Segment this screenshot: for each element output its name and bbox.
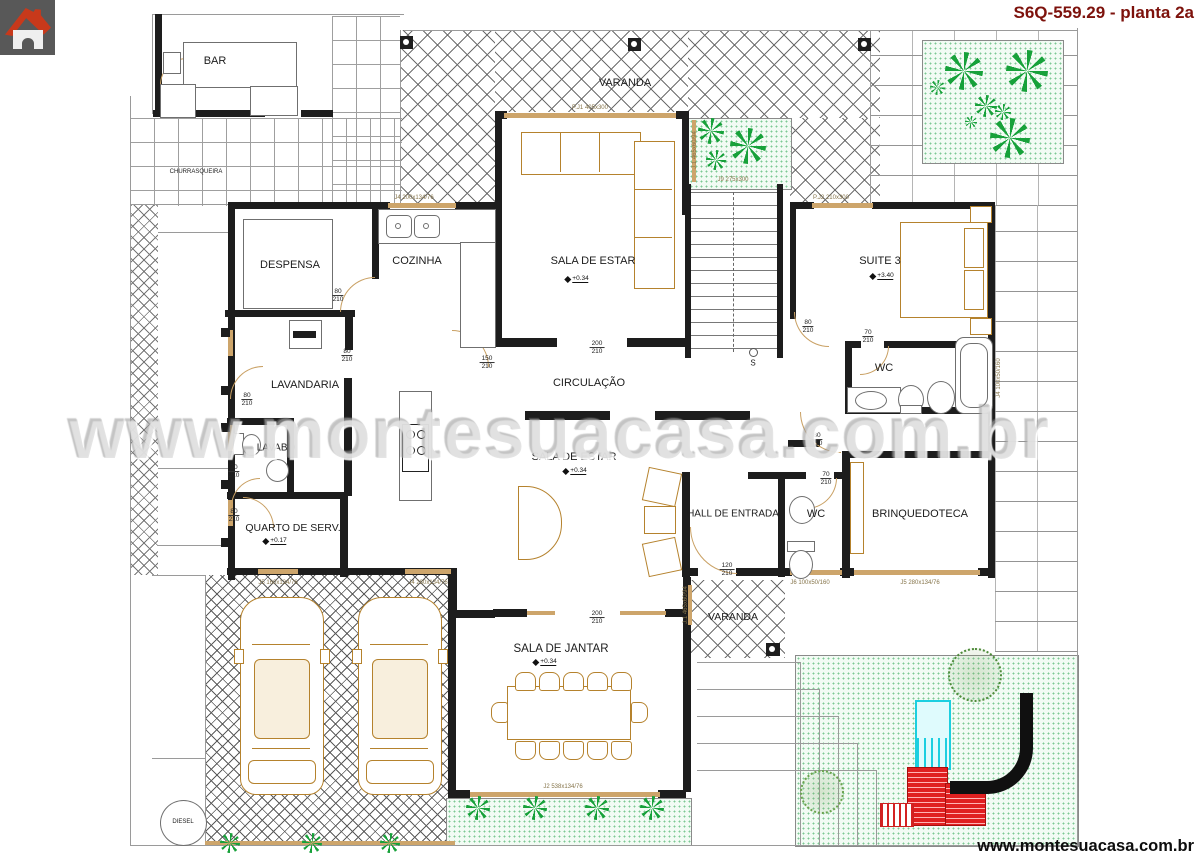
window-sill [221, 386, 230, 395]
column [628, 38, 641, 51]
armchair [642, 537, 682, 577]
room-label: DIESEL [172, 819, 193, 825]
dining-chair [587, 672, 608, 691]
stove-burner [406, 430, 415, 439]
boundary-line [870, 30, 871, 205]
dining-chair [515, 741, 536, 760]
level-marker: +0.34 [533, 658, 556, 666]
window-line [205, 841, 455, 845]
boundary-line [152, 575, 205, 576]
bar-counter [183, 42, 297, 88]
plant-icon [965, 116, 977, 128]
door-dimension-label: 80210 [228, 508, 239, 524]
door-dimension-label: 120210 [720, 562, 735, 578]
stove-burner [417, 430, 426, 439]
window-line [258, 569, 298, 574]
boundary-line [697, 662, 800, 663]
room-label: DESPENSA [260, 259, 320, 271]
plant-icon [706, 150, 726, 170]
column [400, 36, 413, 49]
kitchen-counter [460, 242, 496, 348]
wall-segment [495, 338, 557, 347]
window-line [854, 570, 980, 575]
wall-segment [655, 411, 750, 420]
boundary-line [130, 118, 131, 206]
plant-icon [466, 796, 490, 820]
room-label: CIRCULAÇÃO [553, 377, 625, 389]
window-line [470, 792, 660, 797]
site-logo house-logo-icon[interactable] [0, 0, 55, 55]
wall-segment [777, 184, 783, 358]
car-hood [248, 760, 316, 784]
window-line [812, 203, 873, 208]
wall-segment [676, 111, 688, 119]
wall-segment [658, 790, 686, 798]
site-url[interactable]: www.montesuacasa.com.br [977, 837, 1194, 856]
wall-segment [842, 451, 994, 458]
window-sill [221, 480, 230, 489]
dining-chair [491, 702, 508, 723]
wall-segment [493, 609, 527, 617]
boundary-line [1077, 28, 1078, 846]
level-marker: +0.34 [563, 467, 586, 475]
window-line [504, 113, 676, 118]
plant-icon [220, 833, 240, 853]
room-label: BAR [204, 55, 227, 67]
room-label: VARANDA [708, 611, 758, 623]
varanda-hatch [400, 30, 495, 206]
window-label: P.J1 405x300 [572, 105, 608, 111]
window-label: J5 160x134/76 [258, 580, 297, 586]
car-mirror [438, 649, 448, 664]
bidet [927, 381, 955, 414]
bathtub-inner [960, 343, 988, 408]
wall-segment [448, 790, 470, 798]
play-slide-black [950, 693, 1033, 794]
side-setback-hatch [130, 205, 158, 575]
bar-counter [250, 86, 298, 116]
window-label: J2 538x134/76 [543, 784, 582, 790]
window-label: J4 280x134/76 [408, 580, 447, 586]
car-hood [366, 760, 434, 784]
wall-segment [525, 411, 610, 420]
varanda-hatch [790, 118, 880, 205]
plant-icon [1006, 50, 1048, 92]
wall-segment [682, 568, 698, 576]
sink-drain [395, 223, 401, 229]
boundary-line [819, 689, 820, 845]
room-label: WC [875, 362, 893, 374]
toilet-seat [900, 405, 922, 414]
room-label: SALA DE ESTAR [532, 451, 617, 463]
door-dimension-label: 70210 [820, 471, 831, 487]
sink-drain [423, 223, 429, 229]
sofa [634, 141, 675, 289]
window-label: J4 200x134/76 [394, 195, 433, 201]
boundary-line [404, 30, 1078, 31]
window-label: J5 280x134/76 [900, 580, 939, 586]
varanda-hatch [495, 30, 688, 112]
car-mirror [352, 649, 362, 664]
wall-segment [627, 338, 689, 347]
dining-chair [611, 741, 632, 760]
room-label: COZINHA [392, 255, 442, 267]
wall-segment [988, 451, 995, 578]
wall-segment [790, 202, 796, 319]
door-dimension-label: 80210 [241, 392, 252, 408]
floor-plan-canvas: S6Q-559.29 - planta 2a www.montesuacasa.… [0, 0, 1200, 857]
room-label: WC [807, 508, 825, 520]
window-label: J4 100x50/160 [996, 358, 1002, 397]
side-table [644, 506, 676, 534]
room-label: SALA DE JANTAR [513, 643, 608, 655]
nightstand [970, 206, 992, 223]
window-line [620, 611, 666, 615]
sink-basin [266, 459, 289, 482]
car-rear-window [370, 748, 428, 749]
bar-fridge [160, 84, 196, 118]
door-dimension-label: 80210 [802, 319, 813, 335]
window-label: J.1 465x60/94 [683, 586, 689, 624]
dining-chair [539, 672, 560, 691]
plant-icon [730, 128, 766, 164]
sofa-seam [599, 133, 600, 172]
wall-segment [842, 451, 850, 578]
folding-door [850, 462, 864, 554]
wall-segment [978, 568, 995, 576]
boundary-line [152, 14, 153, 114]
boundary-line [697, 716, 838, 717]
level-marker: +3.40 [870, 272, 893, 280]
door-dimension-label: 80210 [332, 288, 343, 304]
door-dimension-label: 70210 [228, 464, 239, 480]
boundary-line [158, 232, 228, 233]
wall-segment [225, 310, 355, 317]
door-dimension-label: 70210 [862, 329, 873, 345]
tree-icon [800, 770, 844, 814]
door-dimension-label: 200210 [590, 340, 605, 356]
wall-segment [340, 494, 348, 577]
plant-icon [698, 118, 724, 144]
wall-segment [287, 418, 294, 496]
plant-icon [585, 796, 609, 820]
car-mirror [320, 649, 330, 664]
boundary-line [400, 30, 401, 206]
staircase [691, 192, 777, 352]
room-label: BRINQUEDOTECA [872, 508, 968, 520]
dining-chair [539, 741, 560, 760]
window-sill [221, 538, 230, 547]
wall-segment [345, 310, 353, 350]
plant-icon [990, 118, 1030, 158]
bar-sink [163, 52, 181, 74]
logo-house-body [13, 30, 43, 49]
wall-segment [455, 202, 497, 209]
tile-patio [130, 118, 402, 206]
plant-icon [930, 80, 945, 95]
window-line [527, 611, 555, 615]
plant-icon [640, 796, 664, 820]
plant-icon [523, 796, 547, 820]
plan-title: S6Q-559.29 - planta 2a [1014, 3, 1194, 23]
stair-start-marker [749, 348, 758, 357]
plant-icon [302, 833, 322, 853]
car-roof [254, 659, 310, 739]
pillow [964, 270, 984, 310]
boundary-line [130, 96, 131, 845]
wall-segment [495, 111, 502, 215]
car-rear-window [252, 748, 310, 749]
window-line [388, 203, 456, 208]
door-dimension-label: 80210 [811, 432, 822, 448]
room-label: SUITE 3 [859, 255, 901, 267]
wall-segment [683, 612, 691, 792]
boundary-line [152, 758, 205, 759]
level-marker: +0.34 [565, 275, 588, 283]
washer-band [293, 331, 316, 338]
car-roof [372, 659, 428, 739]
wall-segment [736, 568, 792, 576]
boundary-line [800, 662, 801, 845]
dining-chair [631, 702, 648, 723]
toilet-bowl [789, 550, 813, 579]
level-marker: +0.17 [263, 537, 286, 545]
wall-segment [495, 213, 502, 342]
room-label: CHURRASQUEIRA [170, 169, 223, 175]
boundary-line [857, 743, 858, 845]
boundary-line [158, 468, 228, 469]
wall-segment [344, 378, 352, 496]
wall-segment [840, 568, 854, 576]
stove-burner [417, 446, 426, 455]
room-label: VARANDA [599, 77, 651, 89]
armchair [642, 467, 682, 507]
boundary-line [697, 770, 876, 771]
sofa-seam [635, 189, 672, 190]
room-label: LAVANDARIA [271, 379, 339, 391]
nightstand [970, 318, 992, 335]
wall-segment [227, 418, 291, 425]
room-label: S [750, 359, 755, 368]
window-label: J6 100x50/160 [790, 580, 829, 586]
room-label: HALL DE ENTRADA [687, 509, 779, 520]
window-label: J9 275x300 [717, 177, 748, 183]
wall-segment [301, 110, 333, 117]
wall-segment [228, 202, 390, 209]
door-dimension-label: 150210 [480, 355, 495, 371]
varanda-hatch [688, 30, 880, 118]
window-sill [221, 423, 230, 432]
car-windshield [370, 644, 428, 645]
wall-segment [448, 575, 457, 615]
dining-chair [563, 741, 584, 760]
dining-chair [563, 672, 584, 691]
wall-segment [778, 472, 785, 577]
door-arc-tl [340, 277, 375, 312]
sofa-seam [560, 133, 561, 172]
wall-segment [748, 472, 806, 479]
dining-table [507, 686, 631, 740]
boundary-line [876, 770, 877, 845]
column [858, 38, 871, 51]
sofa-seam [635, 237, 672, 238]
window-label: J.1 465x60/94 [692, 131, 698, 169]
plant-icon [380, 833, 400, 853]
room-label: QUARTO DE SERV. [245, 522, 340, 534]
pillow [964, 228, 984, 268]
stone-paving [995, 205, 1077, 652]
room-label: LAVABO [257, 443, 296, 454]
dining-chair [587, 741, 608, 760]
dining-chair [515, 672, 536, 691]
dining-chair [611, 672, 632, 691]
play-fence [880, 803, 914, 827]
car-windshield [252, 644, 310, 645]
sofa [521, 132, 641, 175]
sink-basin [855, 391, 887, 410]
play-ladder-cyan [915, 700, 951, 770]
column [766, 643, 780, 656]
grand-piano [518, 486, 562, 560]
boundary-line [205, 575, 206, 843]
wall-segment [448, 612, 456, 792]
plant-icon [975, 95, 997, 117]
window-sill [221, 328, 230, 337]
plant-icon [945, 52, 983, 90]
staircase-centerline [733, 192, 734, 352]
window-line [405, 569, 451, 574]
door-dimension-label: 200210 [590, 610, 605, 626]
boundary-line [697, 743, 857, 744]
room-label: SALA DE ESTAR [551, 255, 636, 267]
stove-burner [406, 446, 415, 455]
boundary-line [152, 14, 404, 15]
boundary-line [158, 545, 228, 546]
wall-segment [685, 184, 691, 358]
wall-segment [682, 472, 690, 577]
window-label: P.J2 210x300 [813, 195, 849, 201]
car-mirror [234, 649, 244, 664]
door-dimension-label: 80210 [341, 348, 352, 364]
boundary-line [130, 845, 1078, 846]
